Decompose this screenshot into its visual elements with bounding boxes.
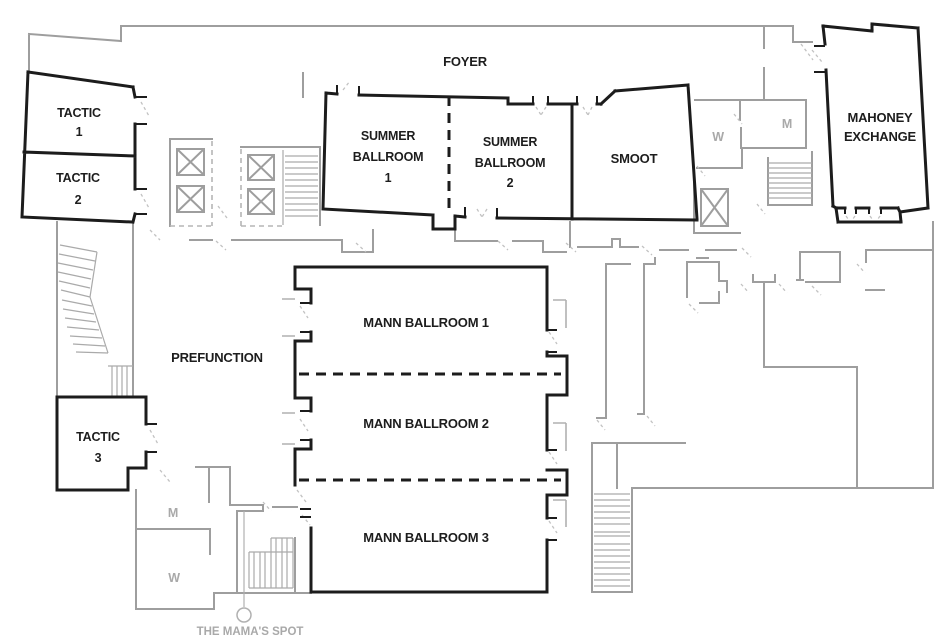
black-room-walls xyxy=(22,24,928,592)
door-jamb-icon xyxy=(135,46,881,540)
mann-ballroom-2-label: MANN BALLROOM 2 xyxy=(363,416,489,431)
door-leaf-icon xyxy=(282,299,566,527)
door-swings xyxy=(141,44,880,533)
tactic-1-number: 1 xyxy=(76,125,83,139)
summer-ballroom-1-line1: SUMMER xyxy=(361,129,416,143)
floor-plan-svg: FOYER TACTIC 1 TACTIC 2 TACTIC 3 SUMMER … xyxy=(0,0,947,643)
floor-plan: FOYER TACTIC 1 TACTIC 2 TACTIC 3 SUMMER … xyxy=(0,0,947,643)
service-room-b-walls xyxy=(797,252,840,282)
lower-restroom-walls xyxy=(136,467,297,554)
elevator-icon xyxy=(248,155,274,180)
lower-right-stair-icon xyxy=(594,494,630,586)
tactic-2-number: 2 xyxy=(75,193,82,207)
elevator-icon xyxy=(177,149,204,175)
smoot-label: SMOOT xyxy=(611,151,658,166)
mens-restroom-lower-label: M xyxy=(168,506,178,520)
elevator-icon xyxy=(177,186,204,212)
tactic-3-label: TACTIC xyxy=(76,430,120,444)
womens-restroom-lower-label: W xyxy=(168,571,180,585)
mann-ballroom-3-label: MANN BALLROOM 3 xyxy=(363,530,489,545)
tee-corridor-wall xyxy=(753,275,857,488)
foyer-label: FOYER xyxy=(443,54,488,69)
summer-ballroom-1-line2: BALLROOM xyxy=(353,150,424,164)
service-room-c-walls xyxy=(866,250,931,290)
tactic-1-label: TACTIC xyxy=(57,106,101,120)
upper-right-stair-icon xyxy=(768,163,812,198)
womens-restroom-upper-label: W xyxy=(712,130,724,144)
summer-ballroom-2-line1: SUMMER xyxy=(483,135,538,149)
tactic-3-number: 3 xyxy=(95,451,102,465)
tactic-2-label: TACTIC xyxy=(56,171,100,185)
mamas-spot-label: THE MAMA'S SPOT xyxy=(197,626,304,638)
door-jambs xyxy=(135,46,881,540)
bank-b-stair-icon xyxy=(283,150,318,225)
door-leafs xyxy=(282,299,566,527)
callout-circle-icon xyxy=(237,608,251,622)
mann-ballroom-1-label: MANN BALLROOM 1 xyxy=(363,315,489,330)
elevator-icon xyxy=(701,189,728,226)
mens-restroom-upper-label: M xyxy=(782,117,792,131)
lower-left-stair-enclosure xyxy=(237,505,295,591)
service-room-a-walls xyxy=(687,258,727,303)
elevator-icon xyxy=(248,189,274,214)
curved-stair-icon xyxy=(58,245,133,397)
stair-treads xyxy=(58,150,812,588)
summer-ballroom-1-number: 1 xyxy=(385,171,392,185)
summer-ballroom-2-number: 2 xyxy=(507,176,514,190)
lower-left-stair-icon xyxy=(249,538,293,588)
door-swing-icon xyxy=(141,44,880,533)
right-corridor-walls xyxy=(597,258,655,418)
summer-ballroom-2-line2: BALLROOM xyxy=(475,156,546,170)
mahoney-line2: EXCHANGE xyxy=(844,129,917,144)
prefunction-label: PREFUNCTION xyxy=(171,350,263,365)
mahoney-line1: MAHONEY xyxy=(847,110,913,125)
facility-labels: W M M W THE MAMA'S SPOT xyxy=(168,117,792,638)
